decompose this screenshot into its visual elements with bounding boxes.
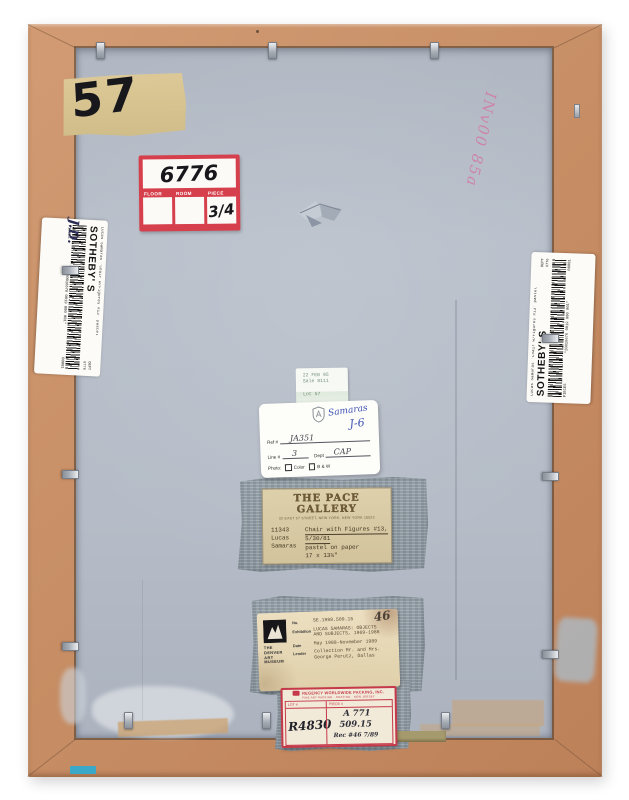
sothebys-dept-block: DEPT 6776 <box>541 258 550 267</box>
piece-value: 3/4 <box>207 199 236 220</box>
pieces-label: PIECES <box>563 383 567 397</box>
date-value: May 1988-November 1989 <box>314 639 378 647</box>
glazing-clip-bottom-1 <box>124 712 133 729</box>
sothebys-card: Lucas Samaras 'Chair w/Figures #13' past… <box>526 252 595 404</box>
line-label: Line # <box>268 454 281 459</box>
denver-exhibition-row: Exhibition LUCAS SAMARAS: OBJECTS AND SU… <box>292 624 394 639</box>
frame-miter-bottom-left <box>27 739 75 777</box>
glazing-clip-top-1 <box>96 42 105 59</box>
pace-gallery-address: 32 EAST 57 STREET, NEW YORK, NEW YORK 10… <box>263 515 391 520</box>
glazing-clip-bottom-3 <box>441 712 450 729</box>
ref-value: JA351 <box>290 433 315 443</box>
line-value: 3 <box>292 449 297 458</box>
pieces-value: 00001 <box>567 259 571 271</box>
sothebys-label-left: Lucas Samaras 'Chair w/Figures #13' past… <box>34 216 108 378</box>
lender-line2: George Perutz, Dallas <box>314 653 380 661</box>
exhibition-value: LUCAS SAMARAS: OBJECTS AND SUBJECTS, 196… <box>313 625 380 639</box>
line-line: 3 <box>282 448 308 459</box>
glazing-clip-right-3 <box>542 650 559 659</box>
no-value: SE.1988.509.15 <box>313 617 353 624</box>
floor-header: FLOOR <box>143 191 172 196</box>
glazing-clip-top-3 <box>430 42 439 59</box>
pace-work-date: 5/30/81 <box>305 535 330 544</box>
exhibition-line2: AND SUBJECTS, 1969-1986 <box>313 631 379 639</box>
pace-left-column: 11343 Lucas Samaras <box>271 526 305 560</box>
piece-header: PIECE <box>207 191 236 196</box>
crease-left <box>142 580 143 720</box>
crease-right <box>455 300 457 680</box>
sothebys-dept-block: DEPT 6776 <box>81 361 91 370</box>
photo-label: Photo: <box>268 465 281 470</box>
regency-logo-icon <box>293 691 300 696</box>
date-label: Date <box>293 641 314 648</box>
pace-typed-block: 11343 Lucas Samaras Chair with Figures #… <box>271 525 391 560</box>
dept-value: CAP <box>334 447 352 457</box>
color-checkbox <box>285 464 292 471</box>
framed-artwork-back-photo: 57 6776 FLOOR ROOM PIECE 3/4 INv00 85a L… <box>0 0 629 800</box>
scuff-left-edge <box>60 668 86 724</box>
floor-cell <box>143 197 172 224</box>
nail-hole <box>256 30 259 33</box>
pace-gallery-title: THE PACE GALLERY <box>263 492 391 515</box>
piece-line1: A 771 <box>343 708 370 718</box>
regency-packing-label: REGENCY WORLDWIDE PACKING, INC. FINE ART… <box>280 686 397 748</box>
color-option: Color <box>294 465 305 470</box>
piece-line3: Rec #46 7/89 <box>334 731 379 739</box>
dept-line: CAP <box>326 446 371 458</box>
glazing-clip-bottom-2 <box>262 712 271 729</box>
handwritten-code: J-6 <box>349 416 365 431</box>
blue-sticker <box>70 766 96 774</box>
red-label-headers: FLOOR ROOM PIECE <box>143 191 236 197</box>
ref-line: JA351 <box>280 431 370 444</box>
lot-number-tape: 57 <box>62 73 186 137</box>
photo-options-row: Photo: Color B & W <box>268 461 371 471</box>
frame-miter-bottom-right <box>555 739 603 777</box>
ref-row: Ref # JA351 <box>267 431 370 445</box>
denver-fields: No. SE.1988.509.15 Exhibition LUCAS SAMA… <box>292 616 396 665</box>
glazing-clip-left-2 <box>62 470 79 479</box>
denver-museum-label: THE DENVER ART MUSEUM 46 No. SE.1988.509… <box>257 609 401 692</box>
piece-line2: 509.15 <box>339 719 372 730</box>
no-label: No. <box>292 619 313 626</box>
registration-label: Samaras J-6 Ref # JA351 Line # 3 Dept CA… <box>259 400 381 478</box>
glazing-clip-right-1 <box>542 334 559 343</box>
glazing-clip-left-3 <box>62 642 79 651</box>
pace-right-column: Chair with Figures #13, 5/30/81 pastel o… <box>305 525 388 560</box>
denver-museum-logo-icon <box>263 619 287 643</box>
red-label-cells: 3/4 <box>143 197 236 225</box>
dept-label: DEPT <box>86 361 91 370</box>
denver-museum-name: THE DENVER ART MUSEUM <box>264 646 284 666</box>
pieces-value: 00001 <box>60 357 65 369</box>
frame-miter-top-right <box>553 24 602 49</box>
dept-label: Dept <box>314 453 324 458</box>
room-header: ROOM <box>175 191 204 196</box>
glazing-clip-right-2 <box>542 472 559 481</box>
piece-cell: 3/4 <box>207 197 236 224</box>
exhibition-label: Exhibition <box>292 627 313 639</box>
pace-work-title: Chair with Figures #13, <box>305 525 388 535</box>
pace-artist-last: Samaras <box>271 542 305 550</box>
red-label-number-box: 6776 <box>143 159 236 189</box>
sothebys-label-right: Lucas Samaras 'Chair w/Figures #13' past… <box>523 252 598 404</box>
sale-lot: Lot 57 <box>303 392 348 399</box>
scuff-right-edge-patch <box>554 617 598 684</box>
tape-remnant-bottom-right <box>452 700 544 726</box>
line-dept-row: Line # 3 Dept CAP <box>267 446 370 460</box>
piece-cell: A 771 509.15 Rec #46 7/89 <box>326 707 392 744</box>
room-cell <box>175 197 204 224</box>
dept-value: 6776 <box>545 258 550 267</box>
glazing-clip-left-1 <box>62 266 79 275</box>
glazing-clip-top-2 <box>268 42 277 59</box>
barcode-number: *20016676 0019 000 001* <box>564 301 570 354</box>
dent-mark <box>290 195 360 231</box>
ref-label: Ref # <box>267 439 278 444</box>
red-label-number: 6776 <box>160 160 219 187</box>
frame-pin <box>574 104 580 118</box>
frame-miter-top-left <box>28 24 77 49</box>
pace-gallery-label: THE PACE GALLERY 32 EAST 57 STREET, NEW … <box>262 487 393 564</box>
bw-checkbox <box>309 463 316 470</box>
bw-option: B & W <box>317 464 330 469</box>
handwritten-initials: J.D. <box>64 218 81 244</box>
sale-number: Sale 8111 <box>303 379 348 386</box>
crest-icon <box>311 406 327 424</box>
regency-table: LOT # PIECE # R4830 A 771 509.15 Rec #46… <box>285 699 394 746</box>
pace-dimensions: 17 x 13¼" <box>305 551 388 560</box>
lot-cell: R4830 <box>286 708 327 745</box>
denver-lender-row: Lender Collection Mr. and Mrs. George Pe… <box>293 647 395 662</box>
lender-value: Collection Mr. and Mrs. George Perutz, D… <box>314 647 381 661</box>
dept-label: DEPT <box>541 258 546 267</box>
museum-name-line: MUSEUM <box>264 660 284 665</box>
lender-label: Lender <box>293 650 314 662</box>
red-inventory-label: 6776 FLOOR ROOM PIECE 3/4 <box>139 154 241 231</box>
